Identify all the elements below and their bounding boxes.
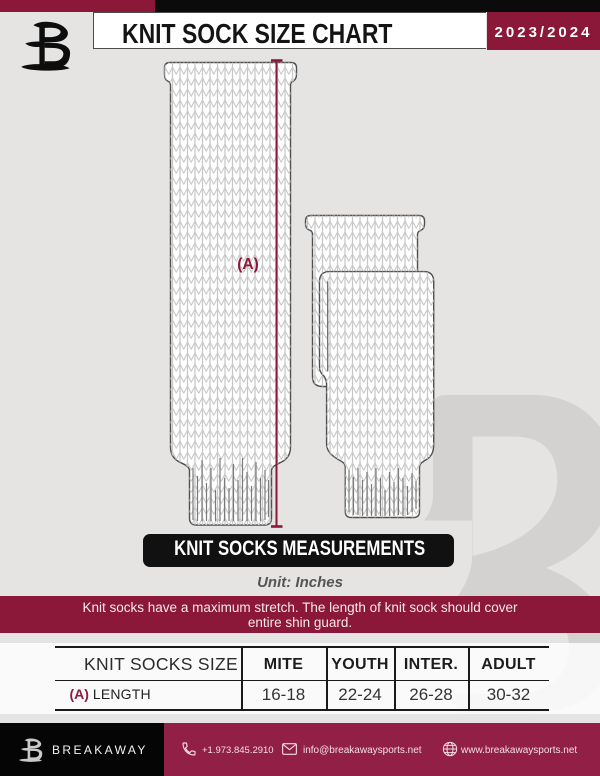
svg-text:(A): (A) — [237, 256, 259, 273]
